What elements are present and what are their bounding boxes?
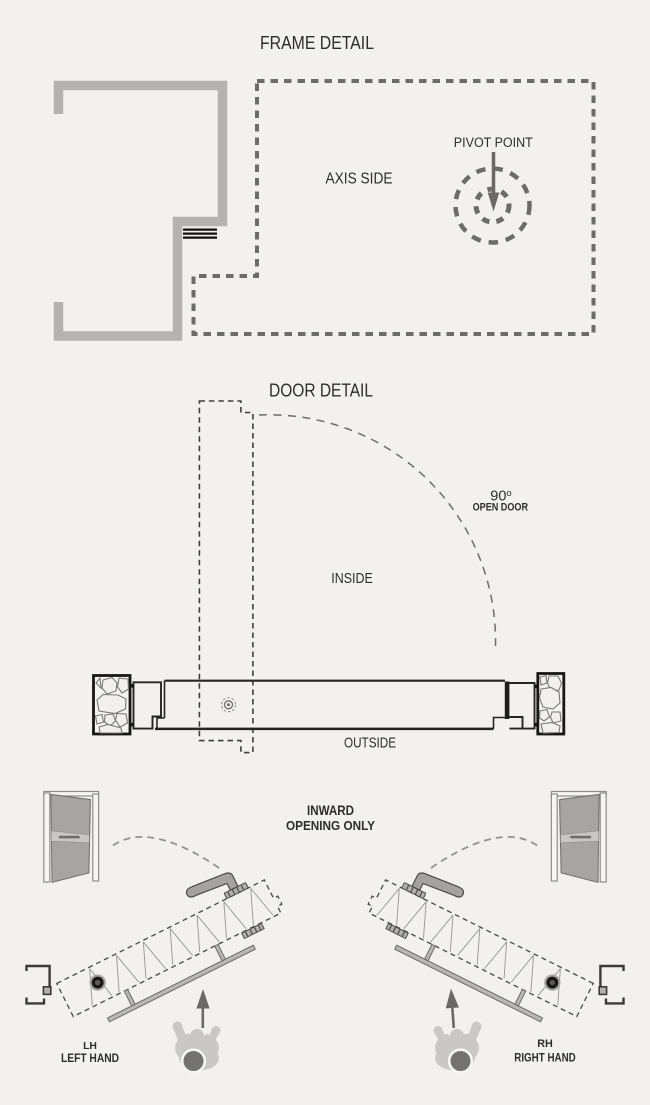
svg-text:OPEN DOOR: OPEN DOOR bbox=[473, 502, 528, 514]
svg-text:OPENING ONLY: OPENING ONLY bbox=[286, 818, 375, 833]
svg-text:RIGHT HAND: RIGHT HAND bbox=[514, 1051, 576, 1065]
svg-text:INWARD: INWARD bbox=[307, 803, 354, 818]
svg-text:INSIDE: INSIDE bbox=[331, 570, 373, 587]
svg-text:FRAME DETAIL: FRAME DETAIL bbox=[260, 33, 374, 53]
svg-text:RH: RH bbox=[537, 1038, 553, 1050]
svg-text:PIVOT POINT: PIVOT POINT bbox=[454, 135, 533, 151]
svg-text:LEFT HAND: LEFT HAND bbox=[61, 1051, 119, 1065]
svg-text:OUTSIDE: OUTSIDE bbox=[344, 735, 396, 752]
svg-text:DOOR DETAIL: DOOR DETAIL bbox=[269, 381, 373, 401]
svg-text:AXIS SIDE: AXIS SIDE bbox=[326, 171, 393, 188]
